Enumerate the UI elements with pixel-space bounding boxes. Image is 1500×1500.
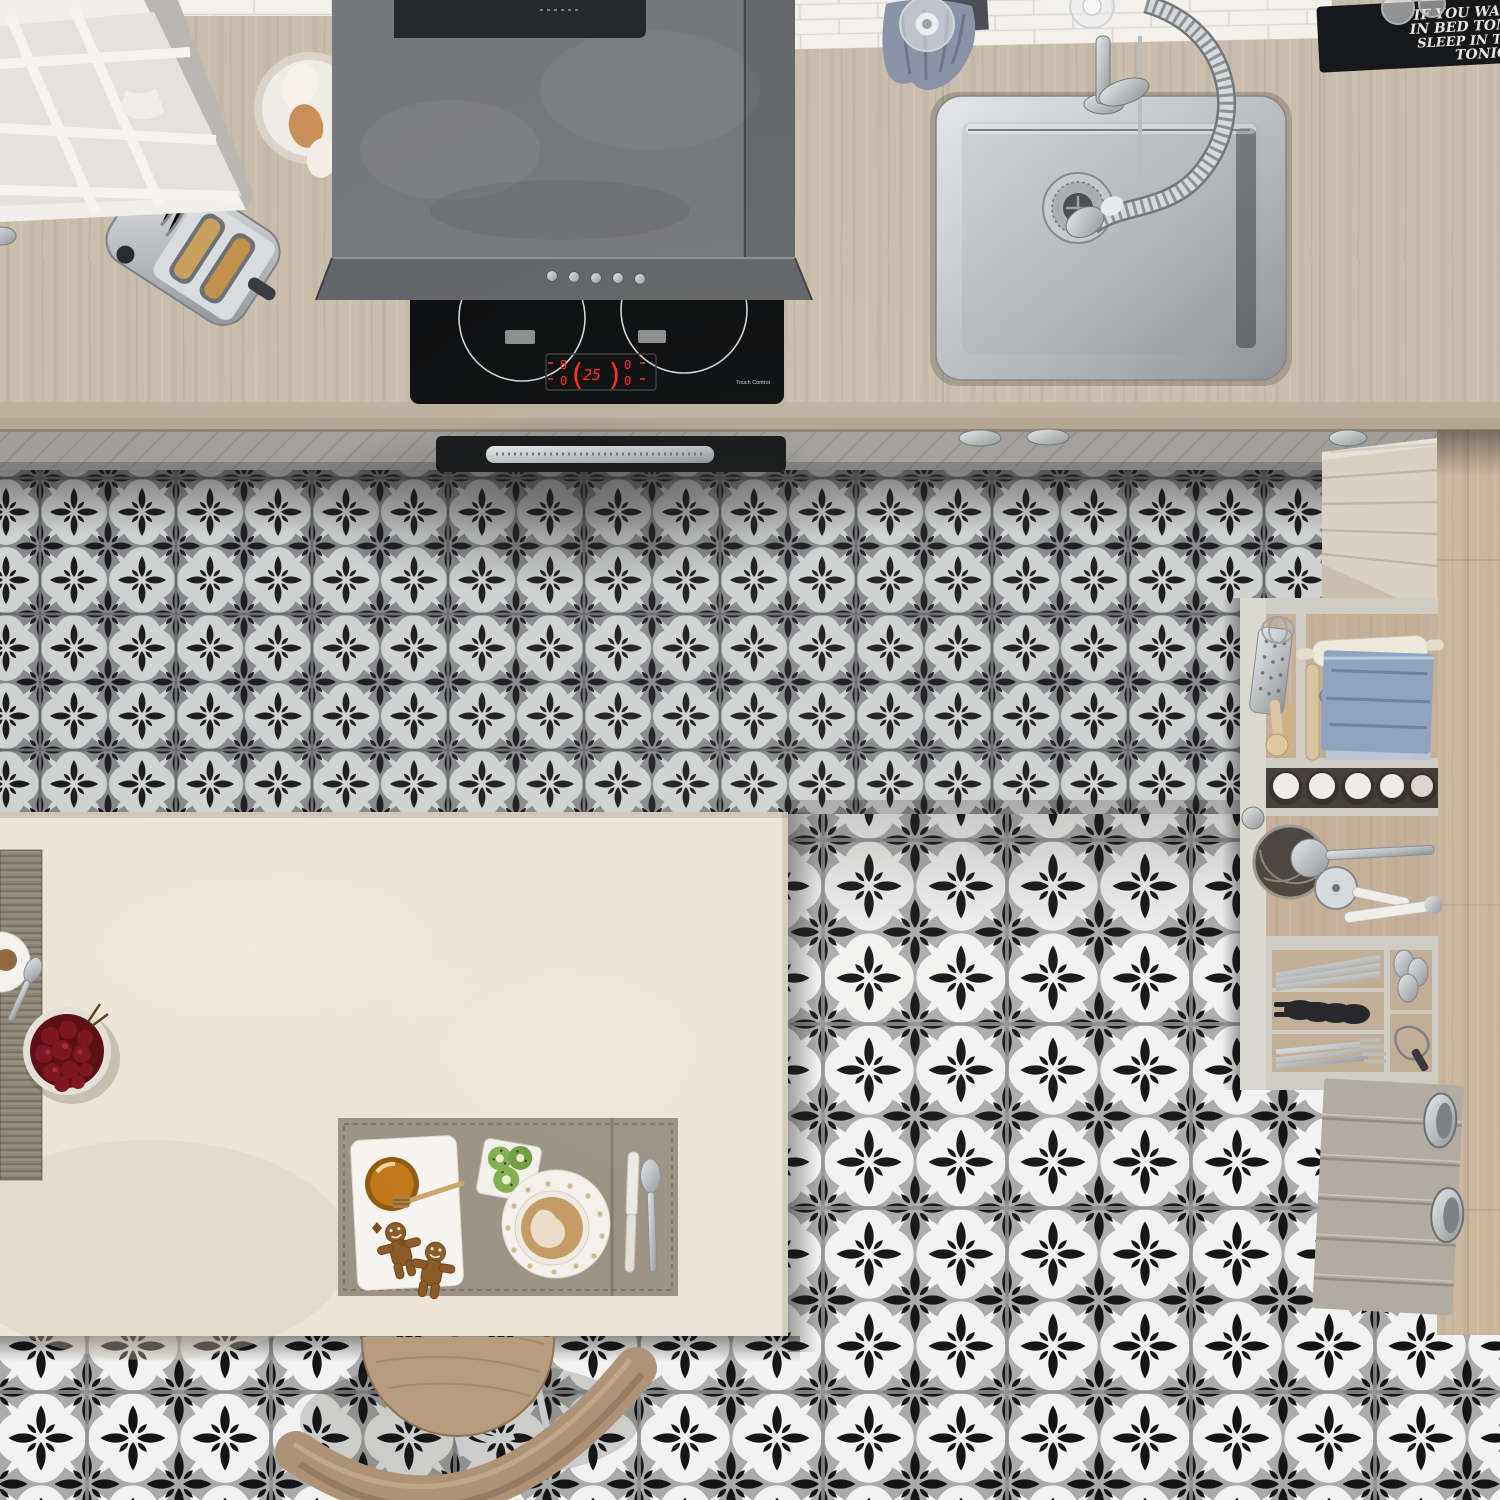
kitchen-scene-svg: 8 0 ( 25 ) 0 0 Touch Control	[0, 0, 1500, 1500]
kitchen-scene: 8 0 ( 25 ) 0 0 Touch Control	[0, 0, 1500, 1500]
light-vignette	[0, 0, 1500, 1500]
